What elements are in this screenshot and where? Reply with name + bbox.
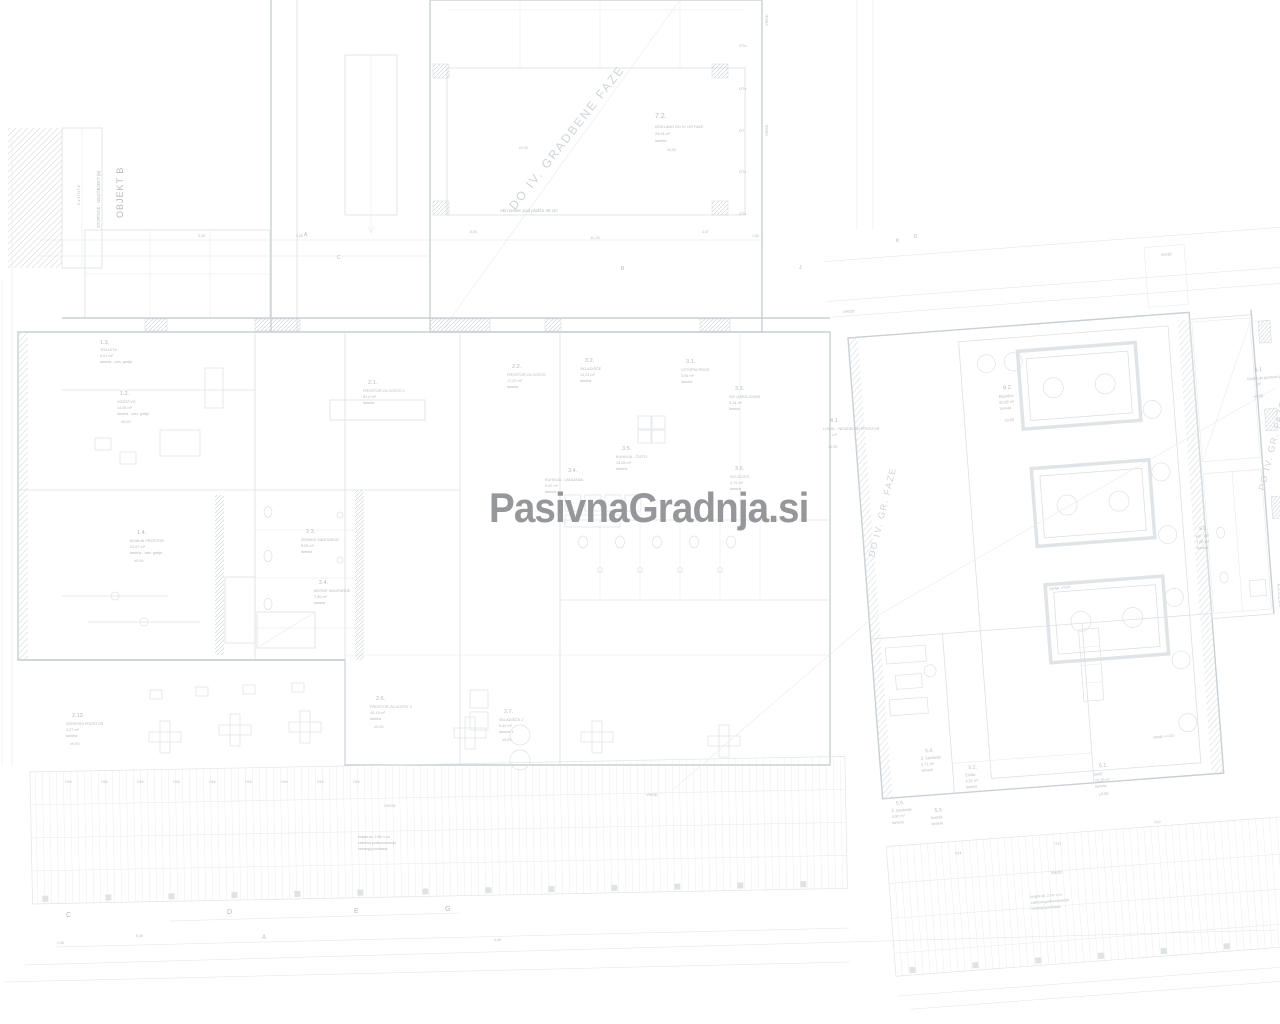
plan-label: 4,92 m² bbox=[892, 814, 906, 819]
plan-label: 14,05 m² bbox=[117, 406, 133, 410]
plan-label: B bbox=[621, 266, 625, 272]
plan-label: lamela bbox=[1095, 784, 1107, 789]
mid-stair bbox=[225, 577, 315, 648]
plan-label: BIVALNI PROSTOR bbox=[130, 539, 164, 543]
plan-label: O16 bbox=[245, 780, 252, 784]
plan-label: ±0,00 bbox=[134, 559, 143, 563]
plan-label: 5,01 m² bbox=[100, 354, 114, 358]
plan-label: 4,27 m² bbox=[66, 728, 80, 732]
plan-label: STOPNICE - OBJ/OBJEKT (B) bbox=[96, 170, 101, 228]
plan-label: 3,06 m² bbox=[681, 374, 695, 378]
plan-label: VHOD bbox=[1050, 869, 1062, 875]
plan-label: O7s bbox=[739, 86, 746, 91]
plan-label: 7,00 m² bbox=[1196, 539, 1210, 544]
plan-label: 5.3. bbox=[934, 807, 943, 814]
plan-label: ±0,00 bbox=[374, 725, 383, 729]
plan-label: SERVISNI PROSTOR bbox=[66, 722, 104, 726]
terrace-tables bbox=[149, 683, 740, 757]
plan-label: K bbox=[896, 238, 900, 244]
right-wing-labels: 9.2.Biljardna60,65 m²lamela±0,006.1Gosti… bbox=[838, 207, 1280, 922]
plan-label: 40,13 m² bbox=[370, 711, 386, 715]
plan-label: lamela bbox=[580, 379, 592, 383]
plan-label: hodnik bbox=[931, 815, 943, 820]
cross-table bbox=[289, 711, 321, 743]
plan-label: 3.6. bbox=[735, 466, 745, 472]
plan-label: PROSTOR ZA GOSTE 2 bbox=[370, 705, 412, 709]
plan-label: 12,21 m² bbox=[580, 373, 596, 377]
plan-label: 3.4. bbox=[568, 468, 578, 474]
plan-label: 5,45 bbox=[136, 934, 143, 938]
plan-label: 3.5. bbox=[622, 446, 632, 452]
upper-hall bbox=[271, 0, 762, 333]
plan-label: 1,50 bbox=[752, 234, 759, 238]
plan-label: 2.7. bbox=[504, 709, 514, 715]
billiard-table bbox=[1031, 460, 1155, 547]
plan-label: 17,22 m² bbox=[507, 379, 523, 383]
plan-label: wc - tuš bbox=[1196, 533, 1209, 538]
plan-label: SKLADIŠČE bbox=[580, 366, 602, 371]
plan-label: O7s bbox=[739, 43, 746, 48]
plan-label: brajda ob. 2,5m v os bbox=[358, 835, 390, 839]
plan-label: DO IV. GR. FAZE bbox=[867, 466, 899, 558]
plan-label: O15 bbox=[101, 780, 108, 784]
cross-table bbox=[219, 714, 251, 746]
plan-label: 7,50 m² bbox=[314, 595, 328, 599]
plan-label: O7s bbox=[739, 211, 746, 216]
plan-label: lamela bbox=[370, 717, 382, 721]
plan-label: 60,65 m² bbox=[999, 400, 1015, 405]
deck-right bbox=[886, 813, 1280, 976]
plan-label: VODSTVO bbox=[117, 400, 136, 404]
plan-label: O12 bbox=[1154, 820, 1161, 824]
plan-label: 3.1. bbox=[686, 359, 696, 365]
plan-label: O14 bbox=[955, 851, 962, 855]
cross-table bbox=[149, 721, 181, 753]
plan-label: VHOD bbox=[384, 803, 396, 808]
corridor-wall bbox=[62, 318, 830, 332]
plan-label: PROSTOR ZA GOSTE bbox=[507, 373, 546, 377]
plan-label: ±0,00 bbox=[502, 738, 511, 742]
plan-label: 2.1. bbox=[368, 380, 378, 386]
plan-label: O16 bbox=[137, 780, 144, 784]
plan-label: O16 bbox=[353, 780, 360, 784]
plan-label: 3,08 bbox=[296, 234, 303, 238]
plan-label: 11,15 bbox=[590, 235, 600, 240]
plan-label: 4,51 m² bbox=[965, 778, 979, 783]
plan-label: lamela bbox=[681, 380, 693, 384]
plan-label: 2.2. bbox=[512, 364, 522, 370]
plan-label: MOŠKE SANITARIJE bbox=[314, 588, 351, 593]
plan-label: SKLADIŠČE 2 bbox=[499, 717, 523, 722]
plan-label: VHOD bbox=[764, 14, 769, 26]
plan-label: O16 bbox=[317, 780, 324, 784]
plan-label: 81,9 m² bbox=[363, 395, 377, 399]
dimension-chains-top bbox=[2, 0, 873, 765]
sanitary-west bbox=[255, 507, 360, 629]
plan-label: O15 bbox=[281, 780, 288, 784]
plan-label: KUHINJA - UMAZANA bbox=[545, 478, 583, 482]
plan-label: 13,05 m² bbox=[616, 461, 632, 465]
plan-label: 6.1 bbox=[1254, 367, 1262, 374]
plan-label: 5.4. bbox=[925, 748, 934, 755]
plan-label: lamela bbox=[922, 768, 934, 773]
plan-label: lamela bbox=[729, 407, 741, 411]
plan-label: VHOD bbox=[764, 124, 769, 136]
plan-label: ±0,00 bbox=[121, 420, 130, 424]
plan-label: lamela bbox=[507, 385, 519, 389]
plan-label: O7 bbox=[739, 128, 745, 133]
plan-label: AB nosilec pod ploščo 45 cm bbox=[500, 208, 558, 213]
plan-label: 22,67 m² bbox=[130, 545, 146, 549]
deck-left bbox=[30, 756, 847, 904]
left-stair-block bbox=[8, 128, 102, 268]
plan-label: O15 bbox=[209, 780, 216, 784]
plan-label: PROSTOR ZA GOSTE 1 bbox=[363, 389, 405, 393]
plan-label: 5,71 m² bbox=[921, 762, 935, 767]
plan-label: Ž. Sanitarije bbox=[891, 807, 912, 814]
living-furniture bbox=[62, 368, 223, 626]
plan-label: 2,30 bbox=[198, 234, 205, 238]
plan-label: lamela bbox=[966, 785, 978, 790]
plan-label: 2.6. bbox=[376, 696, 386, 702]
plan-label: E bbox=[354, 908, 359, 915]
plan-label: - m² bbox=[1254, 382, 1262, 387]
plan-label: O13 bbox=[1054, 841, 1061, 845]
plan-label: VHOD bbox=[646, 792, 658, 797]
plan-label: OBJEKT B bbox=[115, 167, 125, 218]
cross-table bbox=[581, 721, 613, 753]
plan-label: - m² bbox=[830, 433, 837, 437]
sanitary-center bbox=[579, 520, 761, 600]
plan-label: lamela - taln. gretje bbox=[117, 412, 149, 416]
plan-label: C bbox=[337, 255, 341, 261]
plan-label: Čistila bbox=[965, 772, 977, 778]
plan-label: Ž. Sanitarije bbox=[921, 754, 942, 761]
plan-label: 8,05 m² bbox=[301, 544, 315, 548]
plan-label: LOKAL - NEIZDELAN PROSTOR bbox=[823, 427, 880, 431]
plan-label: A bbox=[304, 232, 308, 238]
plan-label: KUHINJA - ČISTO bbox=[616, 454, 647, 459]
plan-label: 1.2. bbox=[120, 391, 130, 397]
kitchen-fixtures bbox=[470, 495, 641, 770]
plan-label: 5.1. bbox=[1099, 763, 1109, 770]
plan-label: ±0,00 bbox=[1004, 418, 1014, 423]
plan-label: vetrangl pocinkana bbox=[358, 847, 387, 851]
plan-label: A bbox=[262, 935, 266, 941]
plan-label: 1.4. bbox=[137, 530, 147, 536]
plan-label: J bbox=[799, 265, 802, 271]
plan-label: 9 x 17/17,8 bbox=[76, 184, 81, 205]
blueprint-page: 9.2.Biljardna60,65 m²lamela±0,006.1Gosti… bbox=[0, 0, 1280, 1024]
plan-label: lamela - taln. gretje bbox=[100, 360, 132, 364]
plan-label: 4,40 bbox=[494, 938, 501, 942]
plan-label: 7.2. bbox=[655, 113, 667, 120]
plan-label: 3.3. bbox=[735, 386, 745, 392]
plan-label: ±0,00 bbox=[1253, 394, 1263, 399]
plan-label: ograja, v=110 bbox=[1049, 585, 1070, 591]
plan-label: G bbox=[445, 906, 450, 913]
plan-label: WC-GOSTI bbox=[730, 475, 749, 479]
plan-label: 1,35 bbox=[57, 941, 64, 945]
plan-label: O7s bbox=[739, 169, 746, 174]
plan-label: 2.13. bbox=[72, 713, 85, 719]
billiard-table bbox=[1017, 342, 1141, 429]
plan-label: lamela bbox=[655, 139, 667, 143]
plan-label: lamela bbox=[1000, 406, 1012, 411]
plan-label: ±0,00 bbox=[70, 742, 79, 746]
plan-label: O16 bbox=[65, 780, 72, 784]
plan-label: G bbox=[913, 234, 917, 240]
plan-label: 4,67 bbox=[702, 230, 709, 234]
plan-label: 5,42 m² bbox=[499, 724, 513, 728]
plan-label: 29,04 m² bbox=[655, 132, 671, 136]
cross-table bbox=[708, 725, 740, 757]
plan-label: lamela bbox=[314, 601, 326, 605]
plan-label: 5.5. bbox=[896, 800, 905, 807]
plan-label: lamela bbox=[616, 467, 628, 471]
plan-label: IZDELANO DO IV. GR FAZE bbox=[655, 125, 704, 129]
plan-label: lamela bbox=[932, 821, 944, 826]
upper-left-rooms bbox=[85, 230, 270, 318]
plan-label: C bbox=[66, 912, 71, 919]
plan-label: VSTOPNI PROS. bbox=[681, 368, 710, 372]
plan-label: lamela 1 bbox=[499, 730, 513, 734]
plan-label: WC GARD./OSEB. bbox=[729, 395, 761, 399]
plan-label: O16 bbox=[173, 780, 180, 784]
plan-label: Gostinski poslovni pr. bbox=[1247, 374, 1280, 381]
plan-label: ±0,00 bbox=[519, 146, 528, 150]
plan-label: lamela bbox=[301, 550, 313, 554]
watermark: PasivnaGradnja.si bbox=[489, 484, 808, 532]
plan-label: D bbox=[227, 909, 232, 916]
plan-label: ograja, v=110 bbox=[1153, 734, 1174, 740]
plan-label: BAR bbox=[1094, 772, 1102, 777]
plan-label: zaščitna podkonstrukcija bbox=[358, 841, 396, 845]
plan-label: 4.1. bbox=[830, 418, 840, 424]
plan-label: 5,00 bbox=[470, 230, 477, 234]
plan-label: 9.2. bbox=[1003, 385, 1013, 392]
plan-label: 3.2. bbox=[585, 358, 595, 364]
plan-label: Biljardna bbox=[999, 394, 1015, 399]
plan-label: DO IV. GRADBENE FAZE bbox=[506, 63, 627, 213]
plan-label: 3,14 m² bbox=[729, 401, 743, 405]
plan-label: ±0,00 bbox=[667, 148, 676, 152]
plan-label: lamela bbox=[66, 734, 78, 738]
plan-label: 2.3. bbox=[306, 529, 316, 535]
plan-label: TOALETA bbox=[100, 348, 117, 352]
plan-label: 5.6. bbox=[1199, 526, 1208, 533]
plan-label: VHOD bbox=[843, 308, 855, 314]
plan-label: ±0,00 bbox=[828, 445, 837, 449]
plan-label: ŽENSKE SANITARIJE bbox=[301, 537, 339, 542]
bar-counter bbox=[330, 400, 665, 443]
plan-label: 2.4. bbox=[319, 580, 329, 586]
plan-label: 5.2. bbox=[968, 765, 977, 772]
plan-label: lamela - taln. gretje bbox=[130, 551, 162, 555]
plan-label: lamela bbox=[892, 820, 904, 825]
plan-label: 1.3. bbox=[100, 340, 110, 346]
plan-label: ±0,00 bbox=[1099, 792, 1109, 797]
plan-label: VHOD bbox=[1160, 251, 1172, 257]
plan-label: lamela bbox=[363, 401, 375, 405]
